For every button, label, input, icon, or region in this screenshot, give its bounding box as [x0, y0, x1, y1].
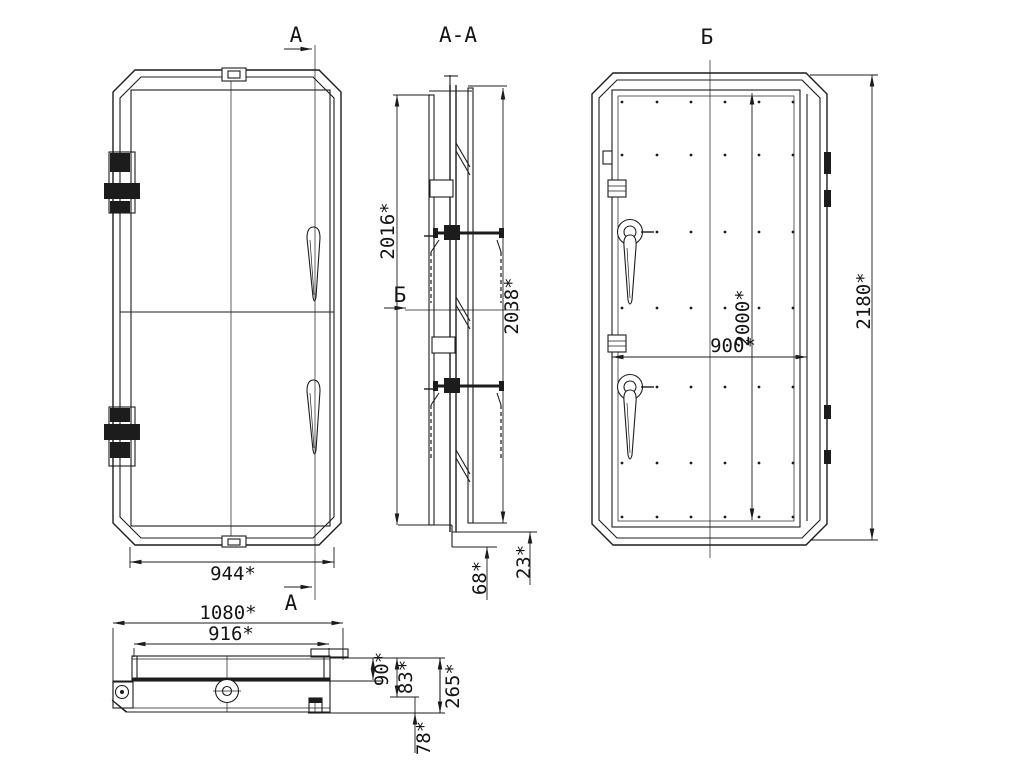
- rivet-dot: [724, 516, 727, 519]
- rivet-dot: [792, 231, 795, 234]
- cut-label-a-top: А: [290, 23, 303, 47]
- dim-2000: 2000*: [732, 289, 754, 346]
- rivet-dot: [690, 307, 693, 310]
- technical-drawing: А А 944*: [0, 0, 1024, 768]
- section-title: А-А: [439, 23, 477, 47]
- back-latch-pin: [603, 151, 612, 164]
- back-handle-upper: [618, 220, 655, 305]
- rivet-dot: [758, 154, 761, 157]
- dim-916: 916*: [208, 623, 254, 645]
- dim-68: 68*: [469, 561, 491, 595]
- back-panel: [612, 90, 800, 527]
- plan-leaf: [132, 656, 330, 681]
- dim-265: 265*: [442, 663, 464, 709]
- back-panel-inner: [618, 96, 794, 521]
- dim-78: 78*: [413, 721, 435, 755]
- door-leaf: [131, 90, 330, 526]
- rivet-dot-grid: [621, 101, 795, 519]
- plan-view: 1080* 916* 90* 83* 265* 78*: [112, 602, 464, 755]
- rivet-dot: [758, 462, 761, 465]
- rivet-dot: [656, 101, 659, 104]
- back-view-title: Б: [701, 25, 714, 49]
- rivet-dot: [724, 307, 727, 310]
- back-inner-outline: [599, 80, 820, 538]
- rivet-dot: [724, 101, 727, 104]
- rivet-dot: [724, 462, 727, 465]
- back-keeper-lower: [608, 335, 626, 352]
- dim-2016: 2016*: [377, 202, 399, 259]
- rivet-dot: [621, 462, 624, 465]
- dim-944: 944*: [210, 563, 256, 585]
- rivet-dot: [758, 386, 761, 389]
- rivet-dot: [621, 307, 624, 310]
- cut-label-b: Б: [394, 283, 407, 307]
- dim-2038: 2038*: [501, 277, 523, 334]
- back-view: Б: [592, 25, 878, 558]
- rivet-dot: [621, 516, 624, 519]
- section-outer-plate: [468, 88, 473, 523]
- rivet-dot: [656, 307, 659, 310]
- plan-hinge-end: [112, 682, 133, 712]
- rivet-dot: [656, 516, 659, 519]
- rivet-dot: [724, 154, 727, 157]
- dim-1080: 1080*: [199, 602, 256, 624]
- rivet-dot: [758, 101, 761, 104]
- rivet-dot: [690, 154, 693, 157]
- rivet-dot: [724, 231, 727, 234]
- rivet-dot: [758, 516, 761, 519]
- dim-23: 23*: [513, 545, 535, 579]
- rivet-dot: [724, 386, 727, 389]
- section-keeper-lower: [432, 337, 455, 353]
- front-view: А А 944*: [104, 23, 341, 615]
- rivet-dot: [792, 516, 795, 519]
- rivet-dot: [621, 101, 624, 104]
- rivet-dot: [758, 307, 761, 310]
- section-keeper-upper: [430, 180, 453, 197]
- rivet-dot: [792, 386, 795, 389]
- rivet-dot: [792, 462, 795, 465]
- drawing-canvas: А А 944*: [0, 0, 1024, 768]
- dim-83: 83*: [395, 660, 417, 694]
- rivet-dot: [656, 386, 659, 389]
- rivet-dot: [690, 101, 693, 104]
- rivet-dot: [792, 101, 795, 104]
- plan-bracket: [309, 698, 322, 713]
- cut-label-a-bottom: А: [285, 591, 298, 615]
- rivet-dot: [656, 462, 659, 465]
- back-keeper-upper: [608, 180, 626, 197]
- dim-90: 90*: [371, 652, 393, 686]
- hinge-lower: [104, 407, 140, 466]
- rivet-dot: [656, 231, 659, 234]
- dog-assembly-lower: [424, 378, 504, 458]
- door-inner-outline: [120, 77, 334, 538]
- hinge-upper: [104, 152, 140, 213]
- rivet-dot: [690, 516, 693, 519]
- dim-2180: 2180*: [853, 272, 875, 329]
- dog-assembly-upper: [424, 225, 504, 303]
- rivet-dot: [792, 154, 795, 157]
- rivet-dot: [758, 231, 761, 234]
- section-view: А-А: [377, 23, 537, 600]
- back-handle-lower: [618, 375, 655, 460]
- rivet-dot: [621, 154, 624, 157]
- rivet-dot: [690, 231, 693, 234]
- rivet-dot: [690, 386, 693, 389]
- top-tab: [222, 68, 246, 81]
- rivet-dot: [690, 462, 693, 465]
- rivet-dot: [656, 154, 659, 157]
- back-outer-outline: [592, 73, 827, 545]
- rivet-dot: [792, 307, 795, 310]
- door-outer-outline: [113, 70, 341, 545]
